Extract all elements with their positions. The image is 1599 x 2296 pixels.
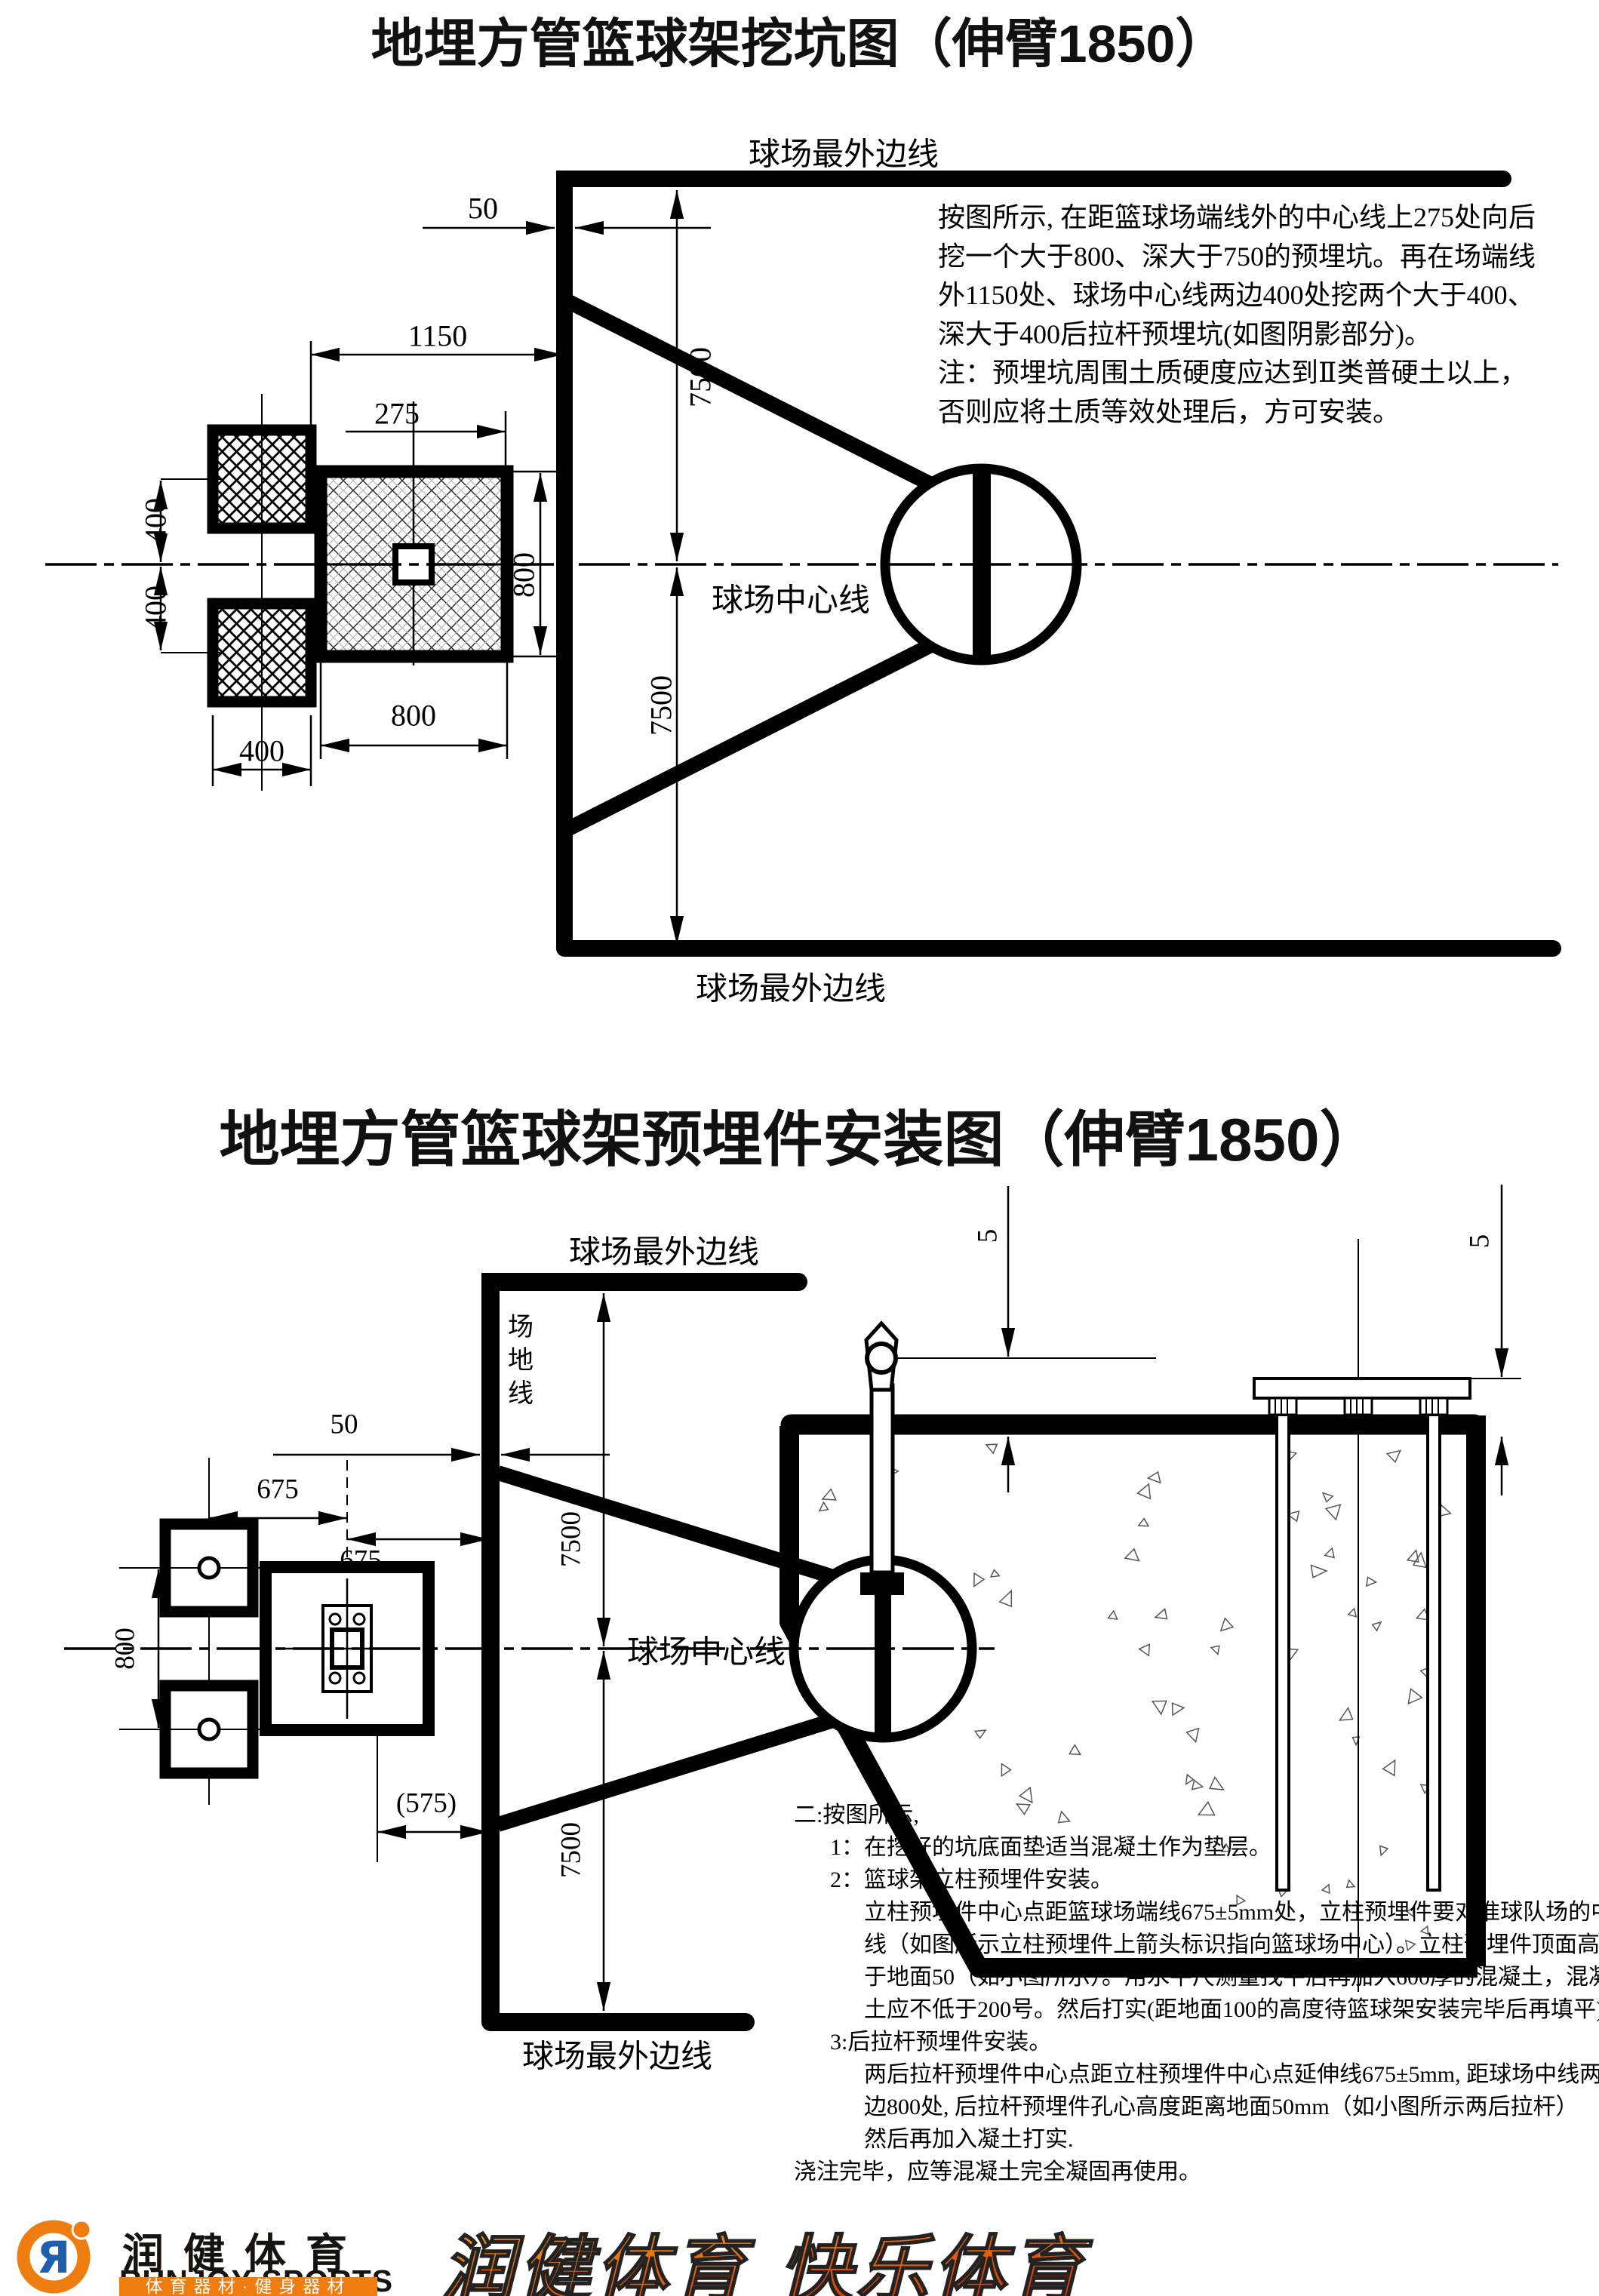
instruction-line: 于地面50（如小图所示）。用水平尺测量找平后再加入600厚的混凝土，混凝 [794, 1961, 1599, 1993]
dim-275: 275 [374, 396, 420, 432]
pit-note-text: 按图所示, 在距篮球场端线外的中心线上275处向后 挖一个大于800、深大于75… [938, 198, 1599, 432]
dim-7500-lower-2: 7500 [555, 1822, 588, 1878]
dim-400-bottom: 400 [239, 733, 284, 769]
logo-tagline-bar: 体育器材·健身器材 [119, 2277, 377, 2296]
dim-800-left: 800 [109, 1627, 142, 1670]
stand-arm-upper [566, 300, 936, 487]
dim-1150: 1150 [408, 318, 468, 354]
note-line: 深大于400后拉杆预埋坑(如图阴影部分)。 [938, 315, 1599, 355]
dim-675-b: 675 [340, 1544, 382, 1577]
dim-400-left-lower: 400 [138, 586, 174, 631]
dim-400-left-upper: 400 [138, 498, 174, 543]
bottom-diagram-title: 地埋方管篮球架预埋件安装图（伸臂1850） [220, 1091, 1380, 1179]
dim-800-right: 800 [506, 552, 542, 598]
drawing-sheet: Я 地埋方管篮球架挖坑图（伸臂1850） 球场最外边线 球场中心线 球场最外边线… [0, 0, 1599, 2296]
instruction-line: 1：在挖好的坑底面垫适当混凝土作为垫层。 [794, 1831, 1599, 1864]
instruction-line: 土应不低于200号。然后打实(距地面100的高度待篮球架安装完毕后再填平)。 [794, 1993, 1599, 2026]
instruction-line: 然后再加入凝土打实. [794, 2123, 1599, 2156]
instruction-line: 两后拉杆预埋件中心点距立柱预埋件中心点延伸线675±5mm, 距球场中线两 [794, 2058, 1599, 2091]
dim-50: 50 [468, 191, 498, 226]
dim-7500-upper-2: 7500 [555, 1511, 588, 1567]
note-line: 挖一个大于800、深大于750的预埋坑。再在场端线 [938, 238, 1599, 277]
logo-mark: Я [23, 2221, 91, 2287]
dim-5-right: 5 [1464, 1234, 1496, 1249]
label-outer-line-top: 球场最外边线 [749, 129, 939, 175]
brand-slogan: 润健体育 快乐体育 [441, 2211, 1087, 2296]
stand-arm-lower [566, 643, 936, 830]
instruction-line: 2：篮球架立柱预埋件安装。 [794, 1864, 1599, 1896]
instruction-line: 3:后拉杆预埋件安装。 [794, 2026, 1599, 2058]
label-field-line: 场地线 [500, 1313, 537, 1412]
dim-7500-upper: 7500 [683, 347, 718, 407]
logo-tagline: 体育器材·健身器材 [119, 2277, 377, 2296]
instruction-line: 立柱预埋件中心点距篮球场端线675±5mm处，立柱预埋件要对准球队场的中 [794, 1896, 1599, 1929]
dim-800-bottom: 800 [391, 698, 436, 733]
instruction-line: 线（如图所示立柱预埋件上箭头标识指向篮球场中心）。立柱预埋件顶面高 [794, 1929, 1599, 1961]
installation-instructions: 二:按图所示, 1：在挖好的坑底面垫适当混凝土作为垫层。 2：篮球架立柱预埋件安… [794, 1799, 1599, 2188]
label-outer-line-bottom-2: 球场最外边线 [522, 2031, 712, 2077]
dim-50-2: 50 [331, 1409, 358, 1441]
label-outer-line-top-2: 球场最外边线 [569, 1227, 759, 1273]
anchor-hole-bottom [199, 1720, 219, 1739]
note-line: 外1150处、球场中心线两边400处挖两个大于400、 [938, 276, 1599, 315]
instruction-line: 二:按图所示, [794, 1799, 1599, 1831]
anchor-hole-top [199, 1558, 219, 1578]
label-center-line-2: 球场中心线 [627, 1627, 786, 1673]
instruction-line: 边800处, 后拉杆预埋件孔心高度距离地面50mm（如小图所示两后拉杆） [794, 2091, 1599, 2123]
note-line: 否则应将土质等效处理后，方可安装。 [938, 393, 1599, 432]
note-line: 注：预埋坑周围土质硬度应达到Ⅱ类普硬土以上， [938, 354, 1599, 393]
dim-575: (575) [396, 1787, 457, 1820]
dim-675-a: 675 [257, 1474, 299, 1506]
label-outer-line-bottom: 球场最外边线 [696, 964, 886, 1010]
logo-letter: Я [37, 2232, 71, 2283]
label-center-line: 球场中心线 [712, 575, 870, 621]
anchor-top-plate [1254, 1379, 1470, 1398]
dim-7500-lower: 7500 [644, 675, 679, 736]
dim-5-left: 5 [972, 1229, 1004, 1243]
top-diagram-title: 地埋方管篮球架挖坑图（伸臂1850） [371, 2, 1228, 78]
instruction-line: 浇注完毕，应等混凝土完全凝固再使用。 [794, 2156, 1599, 2188]
note-line: 按图所示, 在距篮球场端线外的中心线上275处向后 [938, 198, 1599, 238]
